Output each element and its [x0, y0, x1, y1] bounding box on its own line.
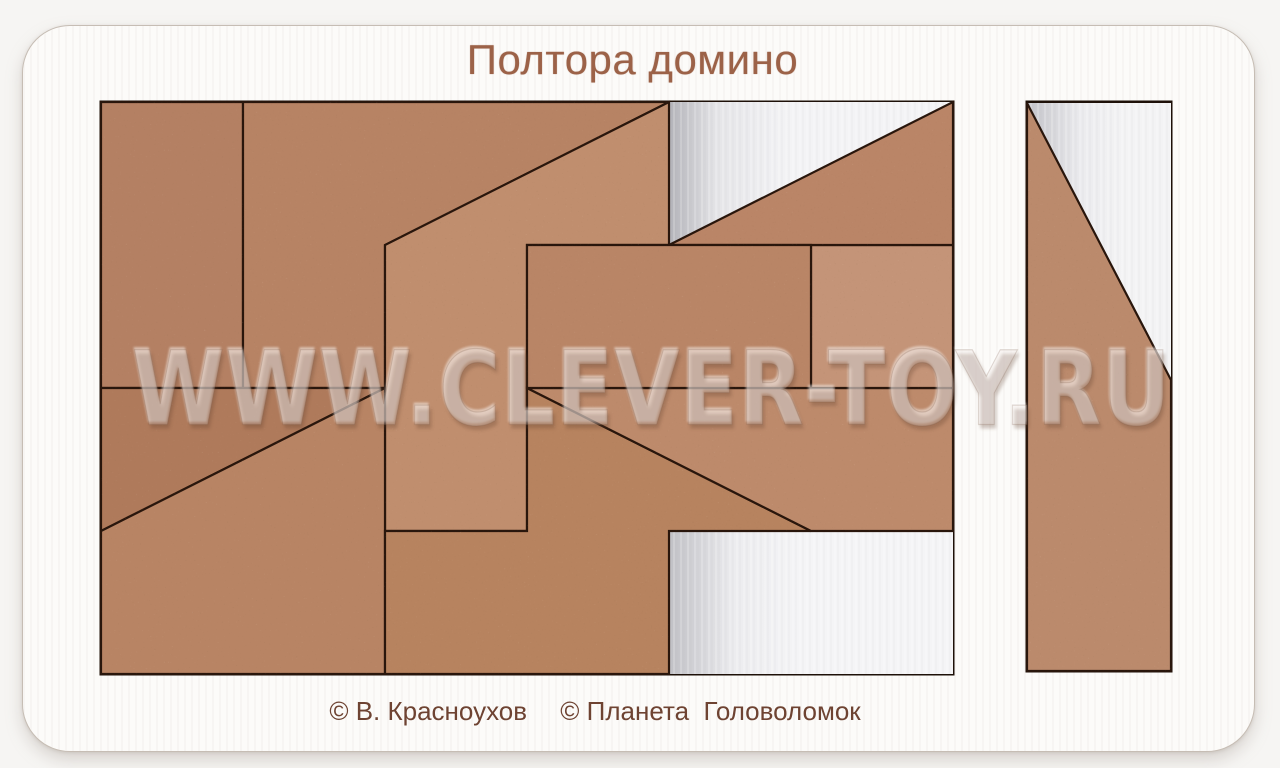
puzzle-scene — [0, 0, 1280, 768]
publisher-credit: © Планета Головоломок — [560, 696, 860, 726]
empty-rect-bottom-texture — [669, 531, 953, 674]
product-photo: Полтора домино WWW.CLEVER-TOY.RU © В. Кр… — [0, 0, 1280, 768]
author-credit: © В. Красноухов — [329, 696, 527, 726]
credits-line: © В. Красноухов © Планета Головоломок — [295, 696, 895, 727]
puzzle-title: Полтора домино — [380, 36, 885, 84]
